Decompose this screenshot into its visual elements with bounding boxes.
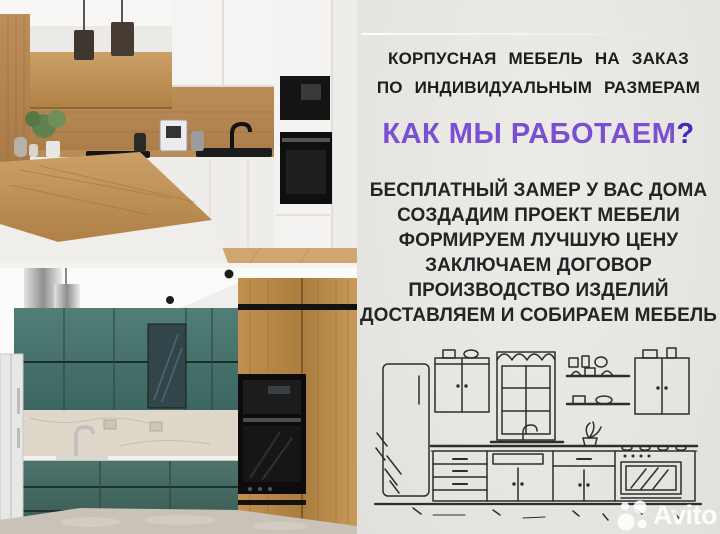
service-line: ЗАКЛЮЧАЕМ ДОГОВОР: [357, 253, 720, 278]
section-title-text: КАК МЫ РАБОТАЕМ: [382, 118, 676, 150]
service-line: ДОСТАВЛЯЕМ И СОБИРАЕМ МЕБЕЛЬ: [357, 303, 720, 328]
section-title-question-mark: ?: [676, 118, 694, 150]
kitchen-photo-bottom: [0, 268, 357, 534]
service-line: ПРОИЗВОДСТВО ИЗДЕЛИЙ: [357, 278, 720, 303]
ad-image: КОРПУСНАЯ МЕБЕЛЬ НА ЗАКАЗ ПО ИНДИВИДУАЛЬ…: [0, 0, 720, 534]
kitchen-sketch-drawing: [373, 338, 705, 524]
services-list: БЕСПЛАТНЫЙ ЗАМЕР У ВАС ДОМА СОЗДАДИМ ПРО…: [357, 178, 720, 328]
service-line: ФОРМИРУЕМ ЛУЧШУЮ ЦЕНУ: [357, 228, 720, 253]
teal-wood-kitchen-illustration: [0, 268, 357, 534]
header-line-2: ПО ИНДИВИДУАЛЬНЫМ РАЗМЕРАМ: [357, 73, 720, 102]
kitchen-sketch: [357, 338, 720, 524]
service-line: СОЗДАДИМ ПРОЕКТ МЕБЕЛИ: [357, 203, 720, 228]
highlight-line: [361, 33, 661, 35]
header-line-1: КОРПУСНАЯ МЕБЕЛЬ НА ЗАКАЗ: [357, 44, 720, 73]
white-wood-kitchen-illustration: [0, 0, 357, 263]
photo-column: [0, 0, 357, 534]
kitchen-photo-top: [0, 0, 357, 263]
section-title: КАК МЫ РАБОТАЕМ?: [357, 116, 720, 152]
service-line: БЕСПЛАТНЫЙ ЗАМЕР У ВАС ДОМА: [357, 178, 720, 203]
ad-panel: КОРПУСНАЯ МЕБЕЛЬ НА ЗАКАЗ ПО ИНДИВИДУАЛЬ…: [357, 0, 720, 534]
ad-panel-content: КОРПУСНАЯ МЕБЕЛЬ НА ЗАКАЗ ПО ИНДИВИДУАЛЬ…: [357, 0, 720, 524]
